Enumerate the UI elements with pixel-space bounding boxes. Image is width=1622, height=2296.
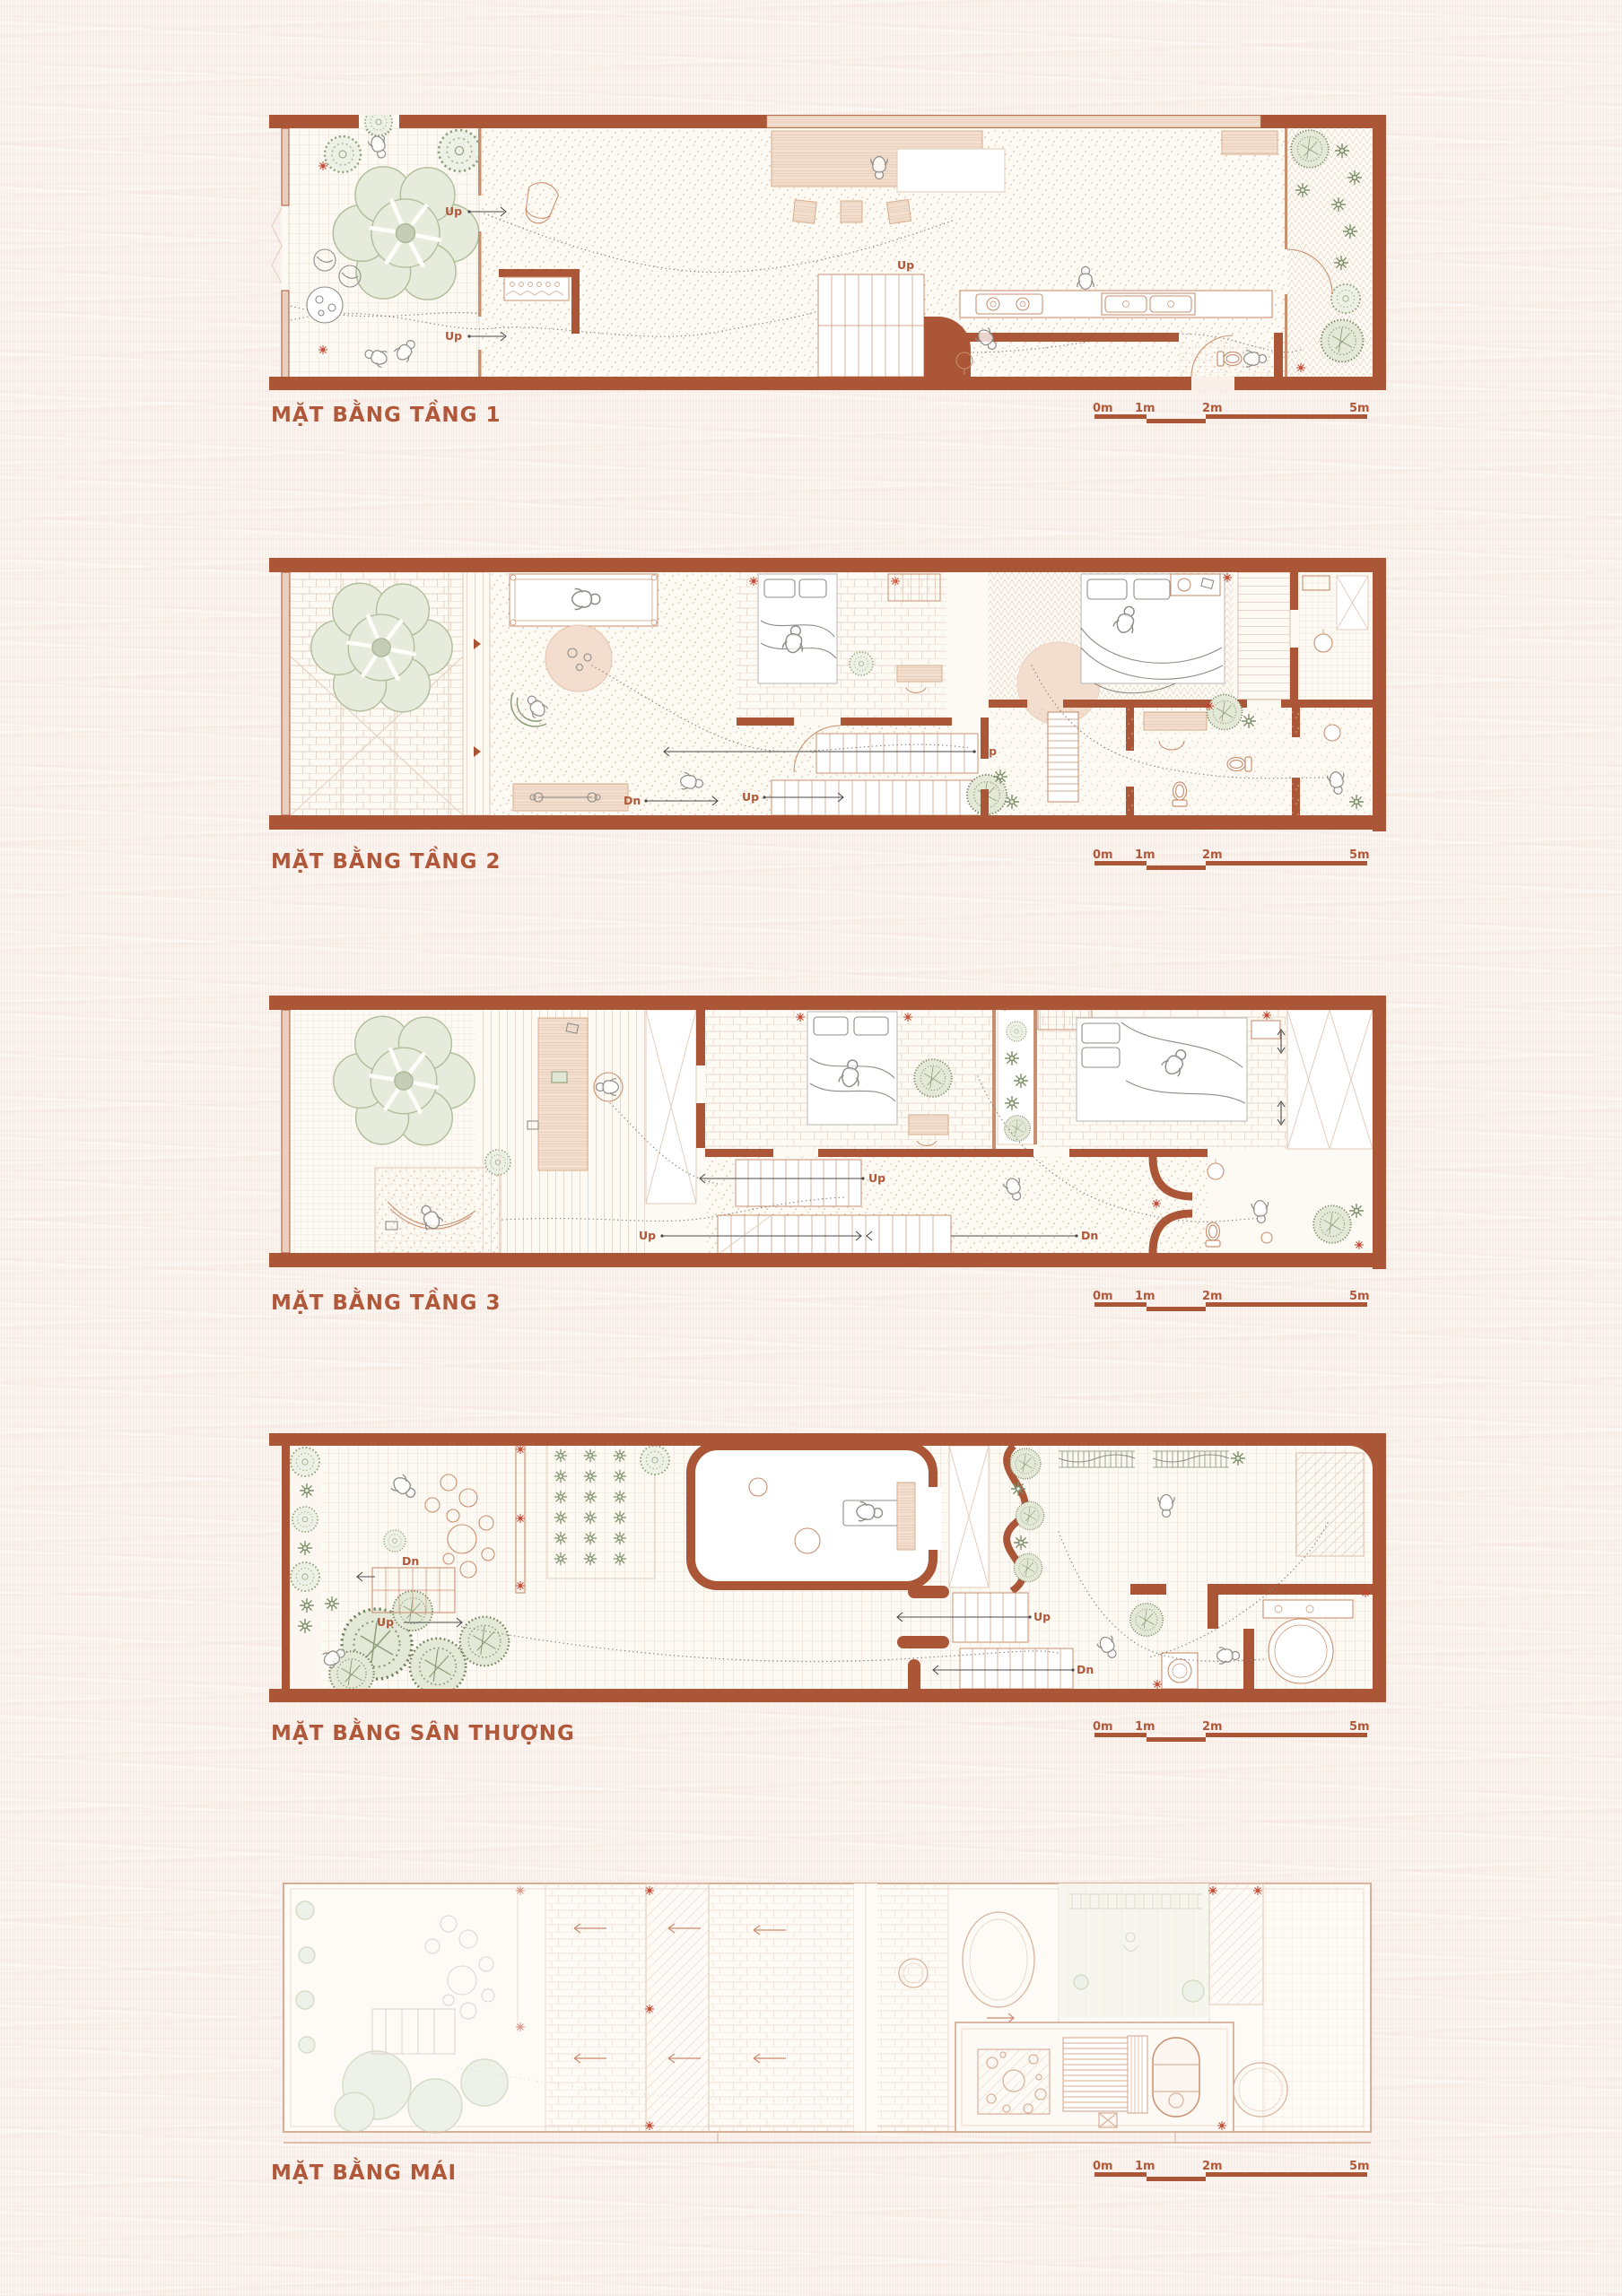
bed	[1077, 1018, 1247, 1121]
toilet	[1217, 352, 1242, 366]
exterior-wall	[282, 572, 290, 815]
svg-text:5m: 5m	[1349, 1290, 1370, 1303]
dressing-table	[1171, 574, 1220, 596]
glass-roof-panel	[1209, 1883, 1263, 2005]
svg-text:2m: 2m	[1202, 1290, 1223, 1303]
svg-text:0m: 0m	[1093, 2160, 1113, 2173]
stair-direction-label: Up	[445, 329, 462, 343]
entrance-gate	[272, 208, 282, 283]
stair-direction-label: Up	[377, 1615, 394, 1629]
floor-plan-drawing-roof-terrace: Dn Up	[269, 1433, 1386, 1702]
stair-direction-label: Dn	[402, 1554, 419, 1568]
plan-title-roof-terrace: MẶT BẰNG SÂN THƯỢNG	[271, 1722, 575, 1745]
svg-text:5m: 5m	[1349, 1720, 1370, 1734]
plan-title-level-1: MẶT BẰNG TẦNG 1	[271, 404, 501, 427]
svg-text:2m: 2m	[1202, 2160, 1223, 2173]
architecture-poster: { "poster": { "plans": [ {"title": "MẶT …	[0, 0, 1622, 2296]
dining-table	[772, 131, 1005, 192]
exterior-wall	[269, 1253, 1386, 1267]
exterior-wall	[269, 815, 1386, 830]
kitchen-counter	[960, 291, 1272, 317]
desk	[897, 665, 942, 682]
exterior-wall	[1373, 115, 1386, 390]
exterior-wall	[282, 1446, 290, 1689]
round-rug	[545, 625, 612, 691]
exterior-wall	[1373, 996, 1386, 1269]
plant-border	[291, 1446, 321, 1689]
toilet	[1206, 1222, 1220, 1247]
svg-text:1m: 1m	[1135, 848, 1155, 862]
plan-title-level-3: MẶT BẰNG TẦNG 3	[271, 1291, 501, 1315]
exterior-wall	[1373, 1433, 1386, 1702]
exterior-wall	[269, 1689, 1386, 1702]
stairs-upper	[736, 1160, 861, 1206]
plan-title-roof: MẶT BẰNG MÁI	[271, 2161, 457, 2185]
brick-roof	[709, 1883, 854, 2132]
svg-text:0m: 0m	[1093, 1290, 1113, 1303]
exterior-wall	[269, 1433, 1386, 1446]
stair-direction-label: Up	[1033, 1610, 1051, 1623]
svg-text:2m: 2m	[1202, 1720, 1223, 1734]
brick-roof	[545, 1883, 646, 2132]
multipurpose-room	[691, 1446, 941, 1586]
scale-bar: 0m 1m 2m 5m	[1093, 1290, 1371, 1315]
scale-bar: 0m 1m 2m 5m	[1093, 2160, 1371, 2185]
stair-direction-label: Up	[445, 204, 462, 218]
stairs-lower	[960, 1648, 1073, 1689]
stair-direction-label: Up	[868, 1171, 885, 1185]
floor-plan-drawing-level-2: Up Up Dn	[269, 558, 1386, 831]
stair-direction-label: Up	[897, 258, 914, 272]
stair-direction-label: Dn	[1077, 1663, 1094, 1676]
wash-basin	[1208, 1163, 1224, 1179]
stool	[793, 200, 816, 223]
front-wall	[282, 128, 289, 205]
stairs-upper	[816, 734, 978, 773]
stool	[886, 199, 911, 223]
bedside-table	[1251, 1021, 1280, 1039]
svg-text:0m: 0m	[1093, 848, 1113, 862]
stair-direction-label: Dn	[1081, 1229, 1098, 1242]
plan-title-level-2: MẶT BẰNG TẦNG 2	[271, 850, 501, 874]
planter-strip	[998, 1010, 1035, 1144]
stool	[841, 201, 862, 222]
wash-basin	[1324, 725, 1340, 741]
glass-roof-panel	[646, 1883, 709, 2132]
exterior-wall	[269, 558, 1386, 572]
glass-roof-panel	[1296, 1453, 1364, 1556]
bidet	[1227, 757, 1251, 771]
floor-plan-drawing-level-1: Up Up	[269, 115, 1386, 390]
scale-bar: 0m 1m 2m 5m	[1093, 848, 1371, 874]
work-desk	[538, 1018, 588, 1170]
svg-text:1m: 1m	[1135, 1720, 1155, 1734]
sideboard	[1222, 131, 1278, 154]
stair-direction-label: Up	[742, 790, 759, 804]
exterior-wall	[282, 1010, 290, 1253]
cabinet	[513, 784, 628, 811]
floor-plan-drawing-level-3: Up Up Dn	[269, 996, 1386, 1269]
wardrobe	[1238, 572, 1290, 700]
vanity-counter	[1144, 712, 1207, 730]
closet	[888, 574, 940, 601]
stair-direction-label: Dn	[624, 794, 641, 807]
svg-text:0m: 0m	[1093, 1720, 1113, 1734]
svg-text:5m: 5m	[1349, 848, 1370, 862]
shower-mat	[1048, 712, 1078, 802]
svg-text:1m: 1m	[1135, 1290, 1155, 1303]
stair-direction-label: Up	[639, 1229, 656, 1242]
louver-screen	[463, 572, 490, 815]
svg-text:5m: 5m	[1349, 402, 1370, 415]
stairs-lower	[718, 1215, 951, 1255]
exterior-wall	[1373, 558, 1386, 831]
scale-bar: 0m 1m 2m 5m	[1093, 1720, 1371, 1745]
tile-roof	[1263, 1883, 1371, 2132]
svg-text:2m: 2m	[1202, 402, 1223, 415]
toilet	[1173, 782, 1187, 806]
svg-text:1m: 1m	[1135, 402, 1155, 415]
exterior-wall	[269, 996, 1386, 1010]
laptop	[552, 1072, 567, 1083]
svg-text:0m: 0m	[1093, 402, 1113, 415]
svg-text:5m: 5m	[1349, 2160, 1370, 2173]
svg-text:2m: 2m	[1202, 848, 1223, 862]
wash-basin	[1314, 634, 1332, 652]
svg-text:1m: 1m	[1135, 2160, 1155, 2173]
scale-bar: 0m 1m 2m 5m	[1093, 402, 1371, 427]
lightwell	[1287, 1010, 1373, 1149]
solar-water-heater	[1153, 2038, 1199, 2117]
floor-plan-drawing-roof	[269, 1874, 1386, 2145]
desk	[909, 1115, 948, 1135]
